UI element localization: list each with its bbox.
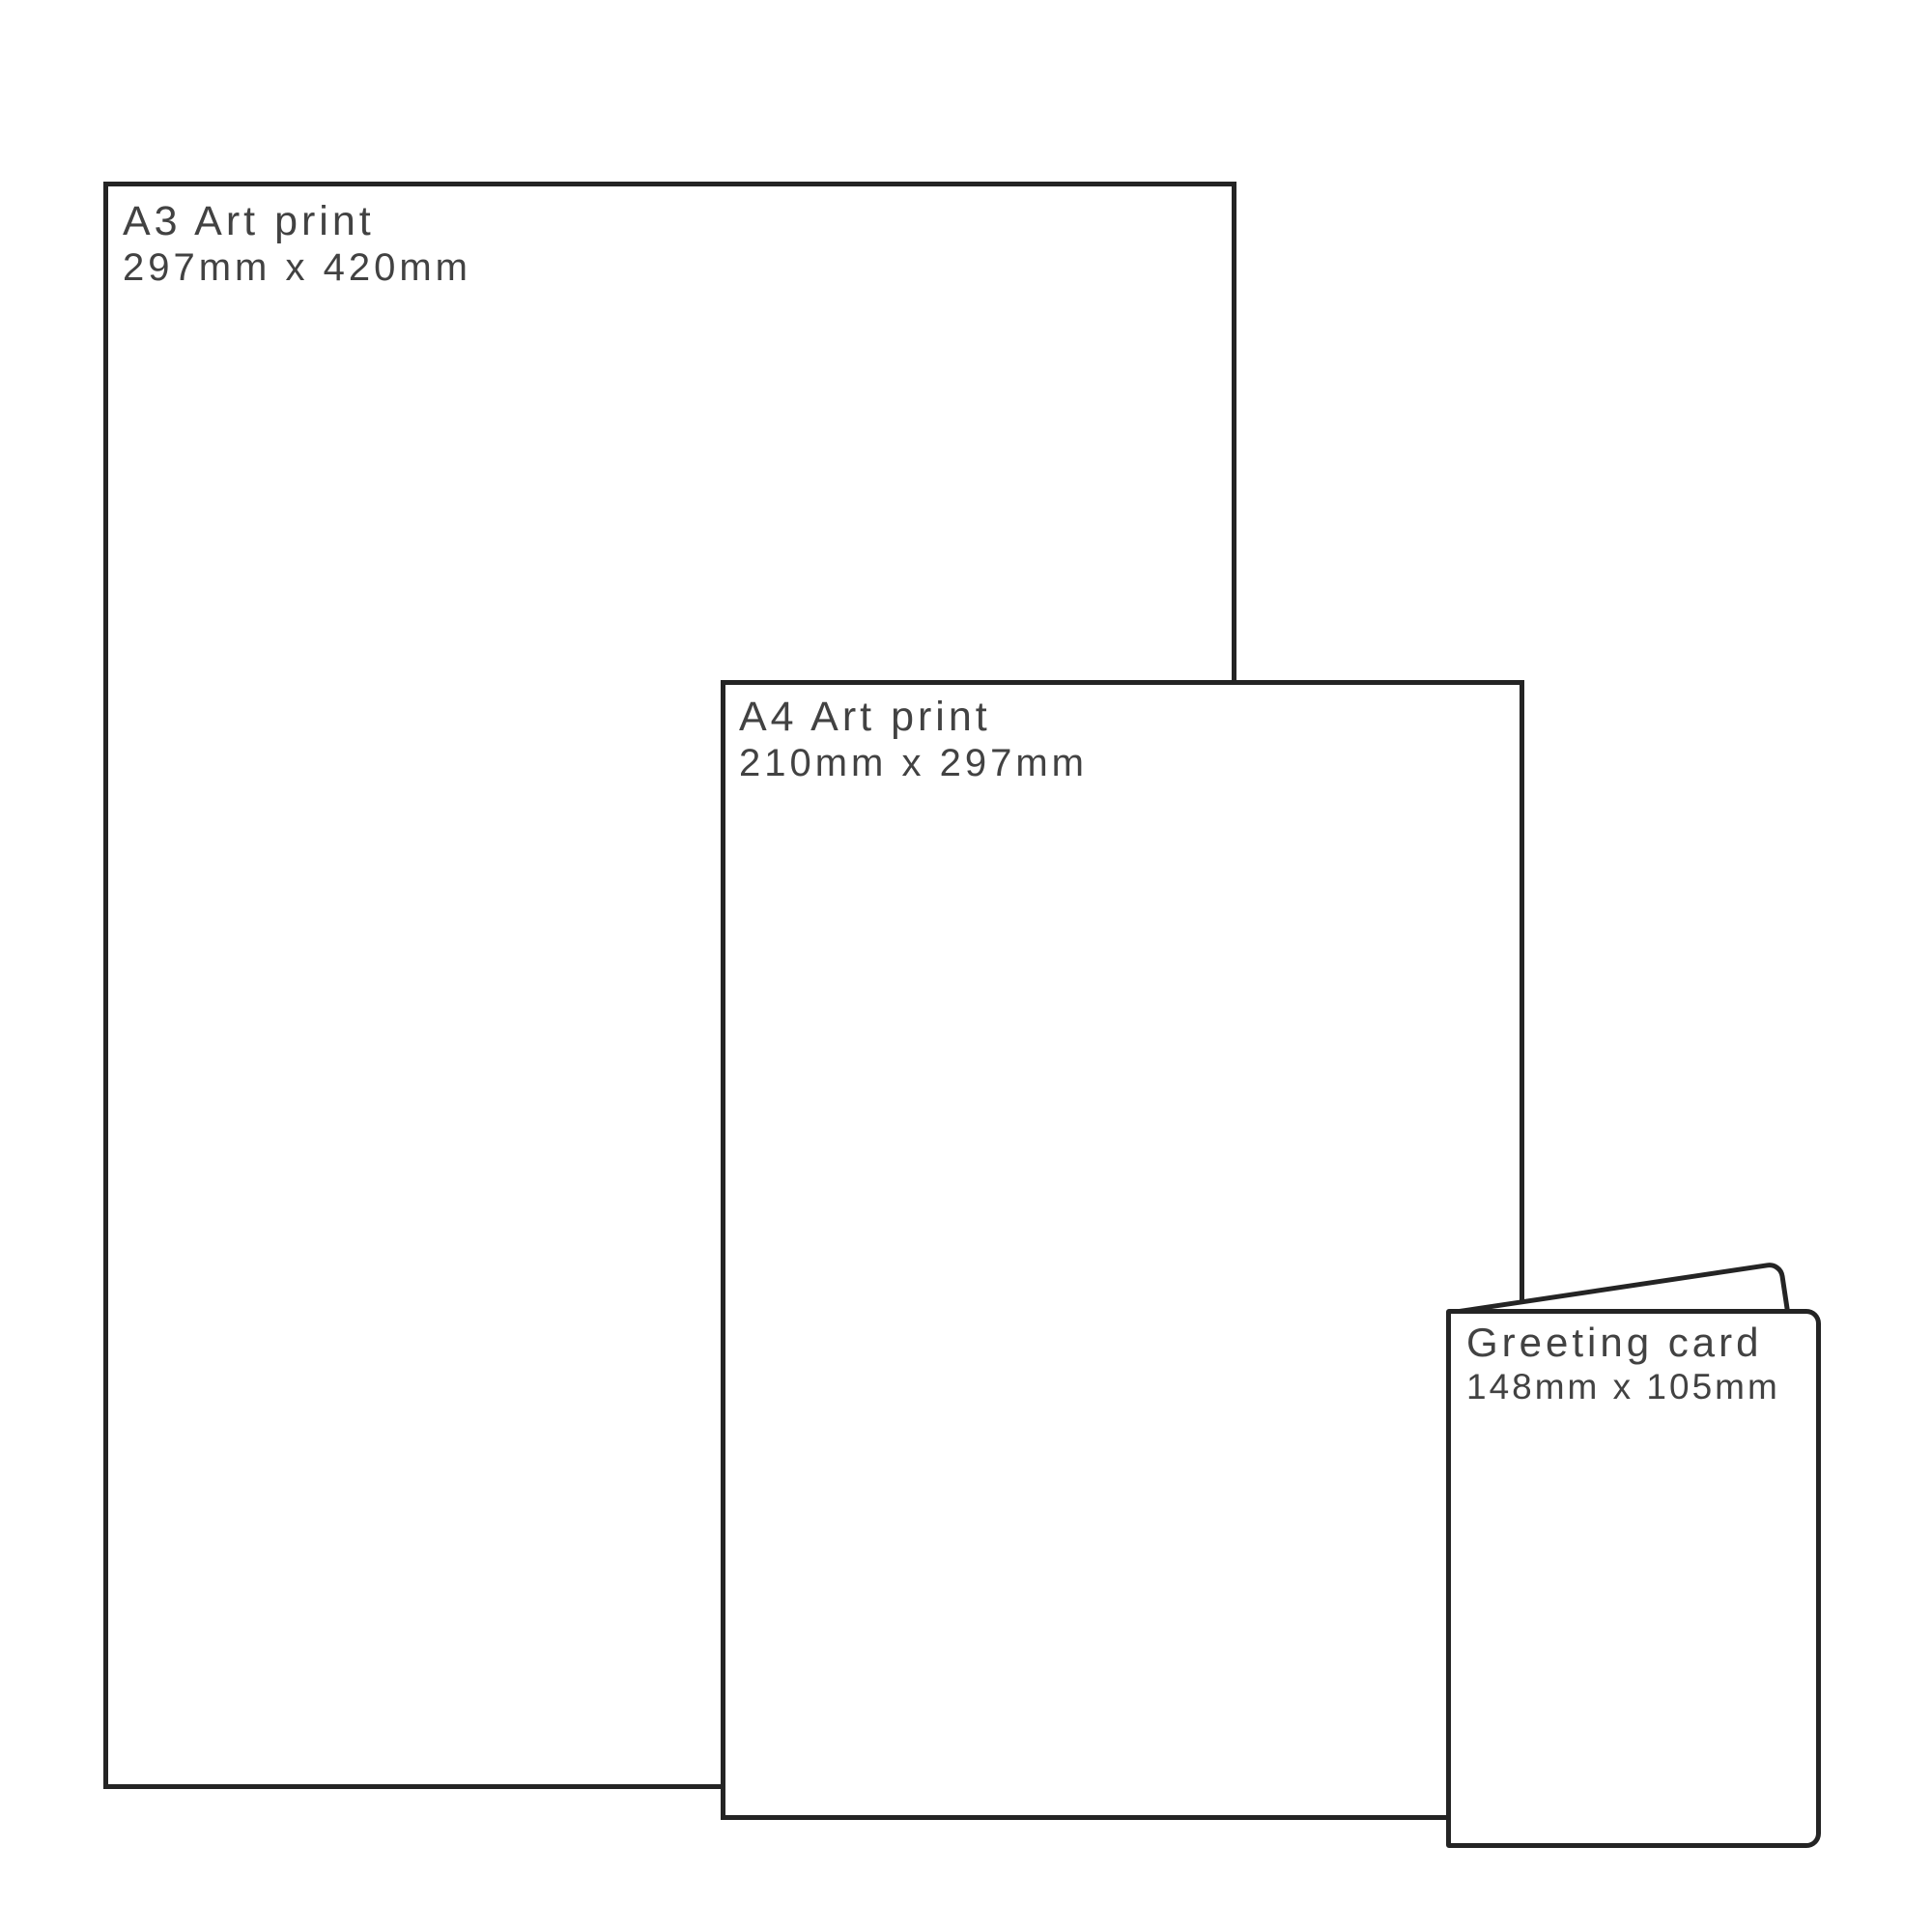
a4-print-outline — [721, 680, 1524, 1820]
greeting-card-label: Greeting card 148mm x 105mm — [1466, 1320, 1780, 1407]
greeting-card-dimensions: 148mm x 105mm — [1466, 1366, 1780, 1407]
a3-print-label: A3 Art print 297mm x 420mm — [123, 198, 471, 290]
a4-print-label: A4 Art print 210mm x 297mm — [739, 694, 1088, 785]
a4-print-title: A4 Art print — [739, 694, 1088, 741]
a4-print-dimensions: 210mm x 297mm — [739, 741, 1088, 785]
a3-print-dimensions: 297mm x 420mm — [123, 245, 471, 290]
size-comparison-diagram: A3 Art print 297mm x 420mm A4 Art print … — [0, 0, 1932, 1932]
a3-print-title: A3 Art print — [123, 198, 471, 245]
greeting-card-title: Greeting card — [1466, 1320, 1780, 1366]
